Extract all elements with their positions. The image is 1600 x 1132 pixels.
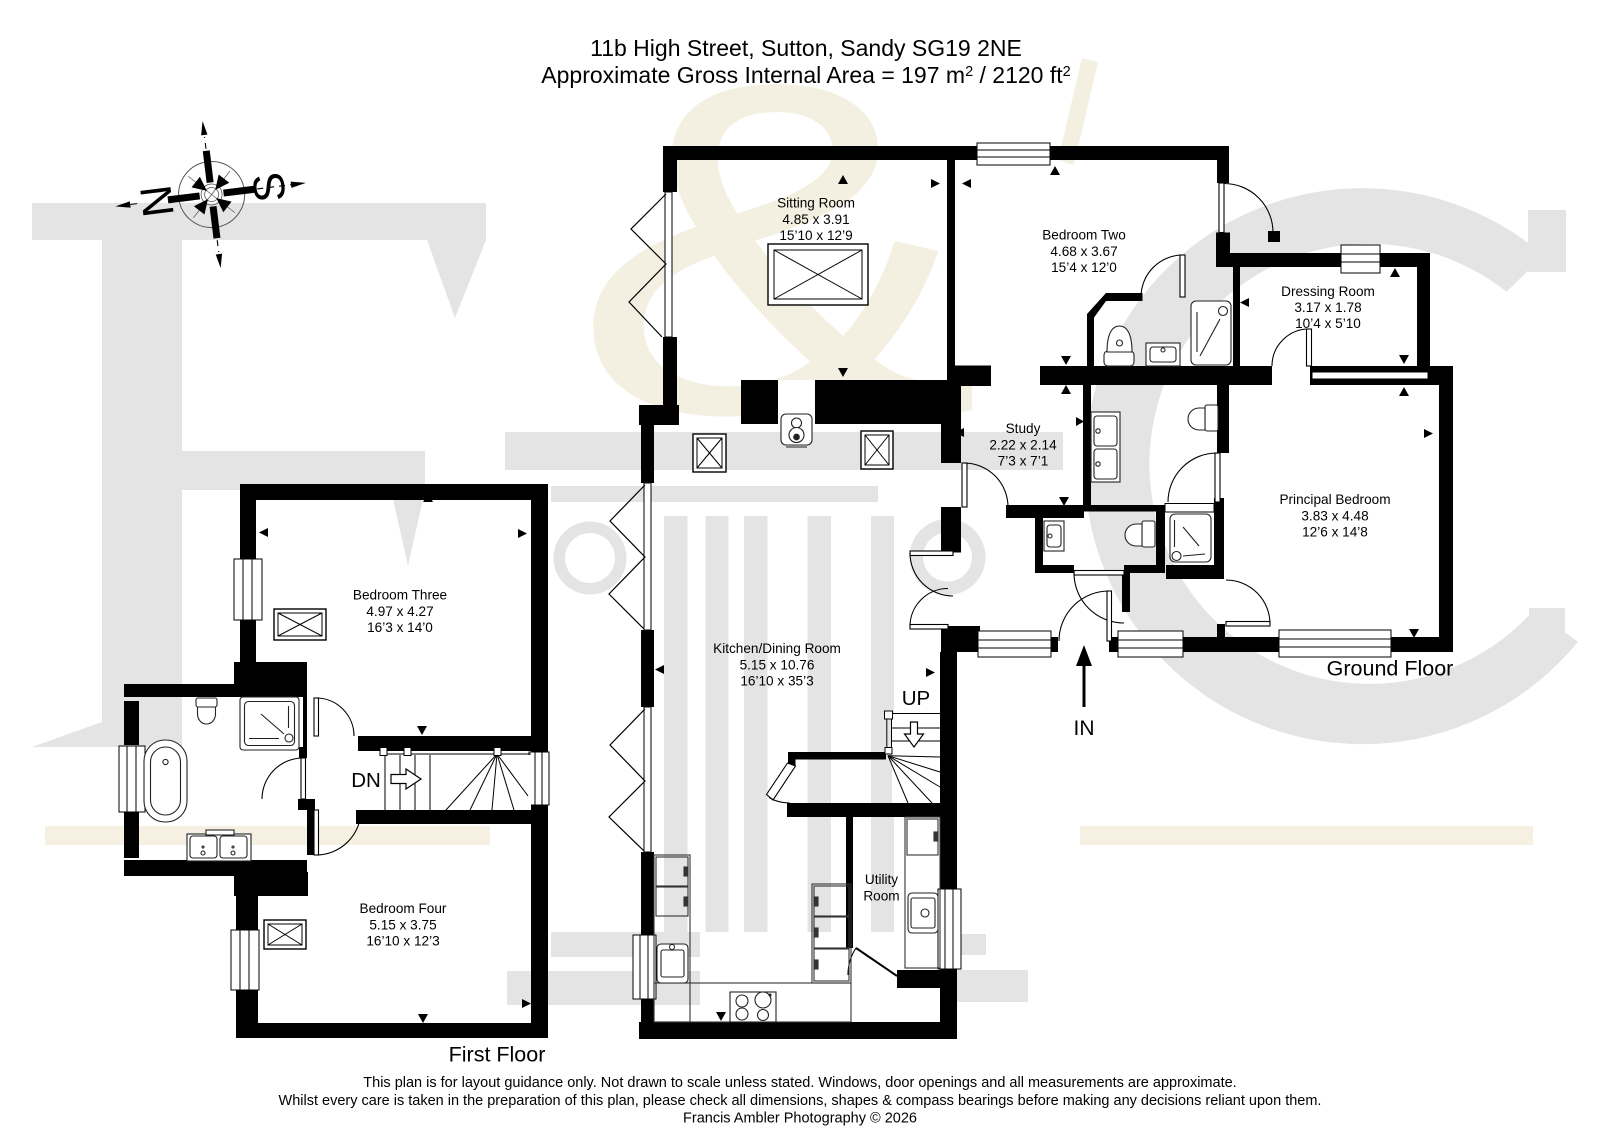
svg-text:3.17 x 1.78: 3.17 x 1.78 bbox=[1294, 300, 1361, 315]
svg-text:16’3 x 14’0: 16’3 x 14’0 bbox=[367, 620, 433, 635]
svg-text:3.83 x 4.48: 3.83 x 4.48 bbox=[1301, 508, 1368, 523]
svg-text:This plan is for layout guidan: This plan is for layout guidance only. N… bbox=[363, 1075, 1236, 1091]
svg-text:Utility: Utility bbox=[865, 872, 898, 887]
svg-text:Dressing Room: Dressing Room bbox=[1281, 284, 1375, 299]
svg-text:7’3 x 7’1: 7’3 x 7’1 bbox=[998, 454, 1049, 469]
svg-text:12’6 x 14’8: 12’6 x 14’8 bbox=[1302, 525, 1368, 540]
svg-text:11b High Street, Sutton, Sandy: 11b High Street, Sutton, Sandy SG19 2NE bbox=[590, 35, 1022, 61]
svg-text:Kitchen/Dining Room: Kitchen/Dining Room bbox=[713, 641, 841, 656]
svg-text:15’4 x 12’0: 15’4 x 12’0 bbox=[1051, 260, 1117, 275]
svg-text:IN: IN bbox=[1074, 717, 1095, 740]
svg-text:16’10 x 35’3: 16’10 x 35’3 bbox=[740, 674, 813, 689]
svg-text:Study: Study bbox=[1006, 421, 1041, 436]
svg-text:S: S bbox=[244, 170, 296, 205]
svg-text:Bedroom Four: Bedroom Four bbox=[360, 901, 447, 916]
svg-text:4.85 x 3.91: 4.85 x 3.91 bbox=[782, 212, 849, 227]
svg-text:4.97 x 4.27: 4.97 x 4.27 bbox=[366, 604, 433, 619]
svg-text:Room: Room bbox=[863, 888, 899, 903]
svg-text:15’10 x 12’9: 15’10 x 12’9 bbox=[779, 228, 852, 243]
svg-text:10’4 x 5’10: 10’4 x 5’10 bbox=[1295, 316, 1361, 331]
svg-text:Sitting Room: Sitting Room bbox=[777, 196, 855, 211]
svg-text:5.15 x 10.76: 5.15 x 10.76 bbox=[740, 657, 815, 672]
svg-text:Principal Bedroom: Principal Bedroom bbox=[1279, 492, 1390, 507]
svg-text:4.68 x 3.67: 4.68 x 3.67 bbox=[1050, 244, 1117, 259]
svg-text:Bedroom Two: Bedroom Two bbox=[1042, 228, 1126, 243]
svg-text:Francis Ambler Photography © 2: Francis Ambler Photography © 2026 bbox=[683, 1111, 917, 1127]
svg-text:DN: DN bbox=[351, 769, 381, 792]
svg-text:Whilst every care is taken in: Whilst every care is taken in the prepar… bbox=[279, 1093, 1322, 1109]
svg-text:16’10 x 12’3: 16’10 x 12’3 bbox=[366, 934, 439, 949]
svg-text:N: N bbox=[131, 182, 184, 220]
svg-text:Approximate Gross Internal Are: Approximate Gross Internal Area = 197 m2… bbox=[541, 62, 1070, 88]
svg-text:First Floor: First Floor bbox=[449, 1043, 546, 1067]
svg-text:Bedroom Three: Bedroom Three bbox=[353, 588, 447, 603]
svg-text:5.15 x 3.75: 5.15 x 3.75 bbox=[369, 917, 436, 932]
svg-text:2.22 x 2.14: 2.22 x 2.14 bbox=[989, 437, 1057, 452]
svg-text:UP: UP bbox=[902, 687, 930, 710]
svg-text:Ground Floor: Ground Floor bbox=[1327, 657, 1454, 681]
